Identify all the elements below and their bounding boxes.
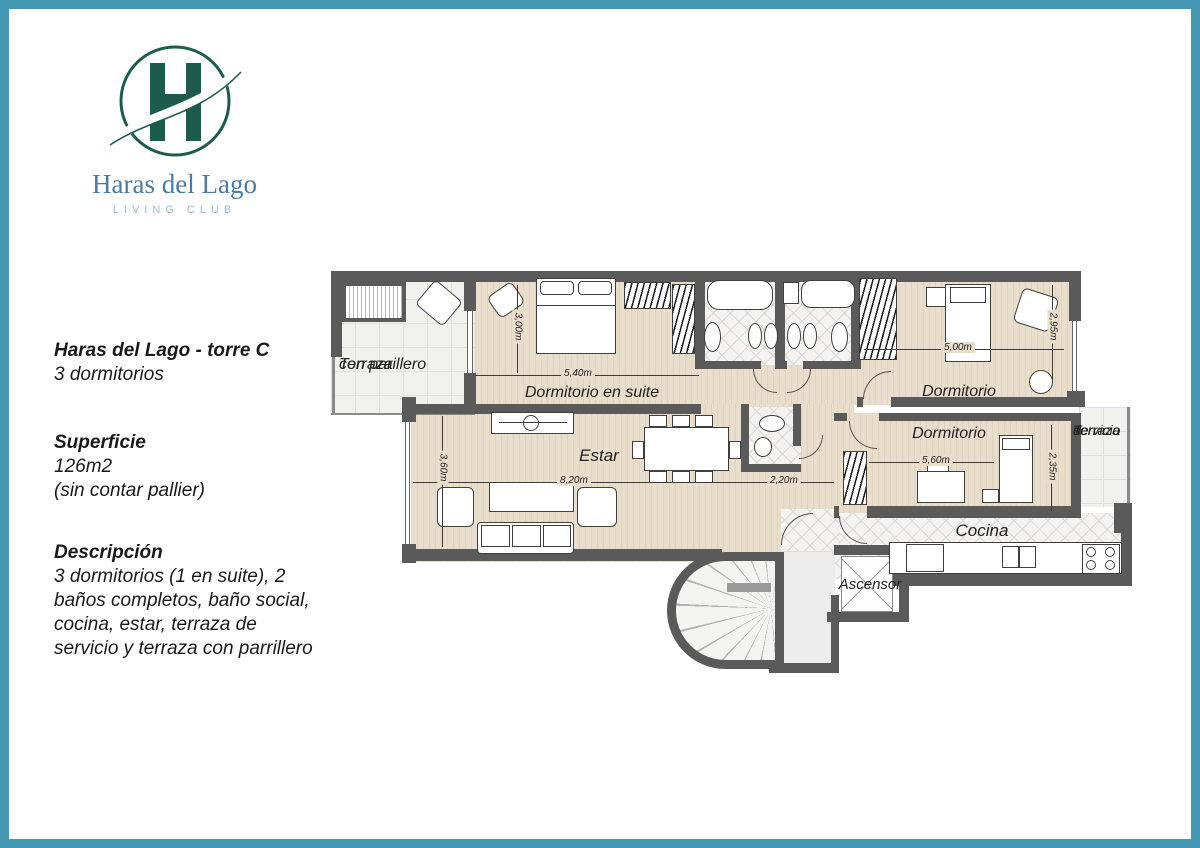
dim-label: 2,35m: [1046, 450, 1057, 484]
dim-label: 5,40m: [561, 368, 595, 379]
chair-symbol: [672, 415, 690, 427]
wall: [331, 271, 342, 357]
chair-symbol: [695, 415, 713, 427]
spiral-stairs: [667, 552, 784, 669]
chair-symbol: [649, 415, 667, 427]
sofa-cushion: [512, 525, 541, 547]
wall: [464, 373, 476, 407]
closet-symbol: [672, 284, 695, 354]
pallier-floor: [775, 552, 835, 669]
sink-symbol: [754, 437, 772, 457]
surface-block: Superficie 126m2 (sin contar pallier): [54, 431, 322, 503]
wall: [775, 361, 787, 369]
kitchen-sink-symbol: [1019, 546, 1036, 568]
unit-title: Haras del Lago - torre C: [54, 339, 322, 363]
wall: [1067, 391, 1085, 407]
dim-label: 8,20m: [557, 475, 591, 486]
blanket-line: [537, 305, 615, 306]
surface-heading: Superficie: [54, 431, 322, 455]
parrilla-grill-symbol: [342, 282, 406, 322]
wall: [803, 361, 861, 369]
bidet-symbol: [803, 323, 817, 349]
bench-symbol: [982, 489, 999, 503]
wall: [695, 276, 705, 369]
toilet-symbol: [787, 323, 801, 349]
burner-symbol: [1086, 560, 1096, 570]
toilet-symbol: [759, 415, 785, 432]
dim-label: 5,00m: [941, 342, 975, 353]
description-block: Descripción 3 dormitorios (1 en suite), …: [54, 541, 322, 661]
closet-symbol: [859, 278, 897, 360]
armchair-symbol: [577, 487, 617, 527]
sink-symbol: [831, 322, 848, 352]
wall: [827, 612, 909, 622]
sofa-cushion: [481, 525, 510, 547]
burner-symbol: [1105, 560, 1115, 570]
room-label-cocina: Cocina: [934, 521, 1030, 541]
chair-symbol: [729, 441, 741, 459]
closet-symbol: [843, 451, 867, 505]
sink-symbol: [704, 322, 721, 352]
kitchen-sink-symbol: [1002, 546, 1019, 568]
dim-label: 5,60m: [919, 455, 953, 466]
burner-symbol: [1105, 547, 1115, 557]
pillow-symbol: [950, 287, 986, 303]
room-label-estar: Estar: [564, 446, 634, 466]
unit-subtitle: 3 dormitorios: [54, 363, 322, 387]
shower-symbol: [783, 282, 799, 304]
wall: [889, 574, 1132, 586]
bidet-symbol: [764, 323, 778, 349]
surface-value: 126m2: [54, 455, 322, 479]
wall: [1069, 271, 1081, 321]
burner-symbol: [1086, 547, 1096, 557]
wall: [741, 464, 801, 472]
floor-plan: Ascensor: [329, 265, 1141, 689]
nightstand-symbol: [926, 287, 946, 307]
coffee-table-symbol: [489, 482, 574, 512]
logo-tagline: LIVING CLUB: [52, 204, 297, 216]
brochure-page: Haras del Lago LIVING CLUB Haras del Lag…: [0, 0, 1200, 848]
wall: [834, 413, 847, 421]
label-line: con parillero: [339, 355, 426, 375]
logo: Haras del Lago LIVING CLUB: [52, 39, 297, 216]
bathtub-symbol: [801, 280, 855, 308]
wall: [331, 271, 1079, 282]
dim-label: 2,20m: [767, 475, 801, 486]
logo-name: Haras del Lago: [52, 169, 297, 200]
wall: [867, 506, 1074, 518]
stair-landing: [727, 583, 771, 592]
room-label-dorm2: Dormitorio: [874, 383, 1044, 401]
terraza-railing: [1127, 407, 1130, 505]
pillow-symbol: [540, 281, 574, 295]
window: [405, 422, 410, 544]
dim-label: 3,60m: [437, 451, 448, 485]
description-heading: Descripción: [54, 541, 322, 565]
wall: [831, 595, 839, 669]
window: [1072, 321, 1077, 391]
dining-table-symbol: [644, 427, 729, 471]
terraza-railing: [332, 357, 335, 415]
pillow-symbol: [578, 281, 612, 295]
wall: [464, 271, 476, 311]
dim-label: 2,95m: [1047, 310, 1058, 344]
dim-label: 3,00m: [512, 310, 523, 344]
console-line: [499, 422, 567, 423]
toilet-symbol: [748, 323, 762, 349]
surface-note: (sin contar pallier): [54, 479, 322, 503]
logo-monogram-icon: [100, 39, 250, 167]
wall: [741, 404, 749, 472]
room-label-ascensor: Ascensor: [824, 576, 916, 593]
room-label-dorm3: Dormitorio: [864, 425, 1034, 443]
closet-symbol: [624, 282, 671, 309]
tv-symbol: [523, 415, 539, 431]
bathtub-symbol: [707, 280, 773, 310]
unit-title-block: Haras del Lago - torre C 3 dormitorios: [54, 339, 322, 387]
room-label-suite: Dormitorio en suite: [479, 384, 705, 402]
wall: [879, 413, 1074, 421]
fridge-symbol: [906, 544, 944, 572]
window: [467, 311, 473, 373]
wall: [695, 361, 761, 369]
label-line: servicio: [1073, 420, 1120, 441]
sofa-cushion: [543, 525, 571, 547]
desk-symbol: [917, 471, 965, 503]
description-body: 3 dormitorios (1 en suite), 2 baños comp…: [54, 565, 322, 661]
